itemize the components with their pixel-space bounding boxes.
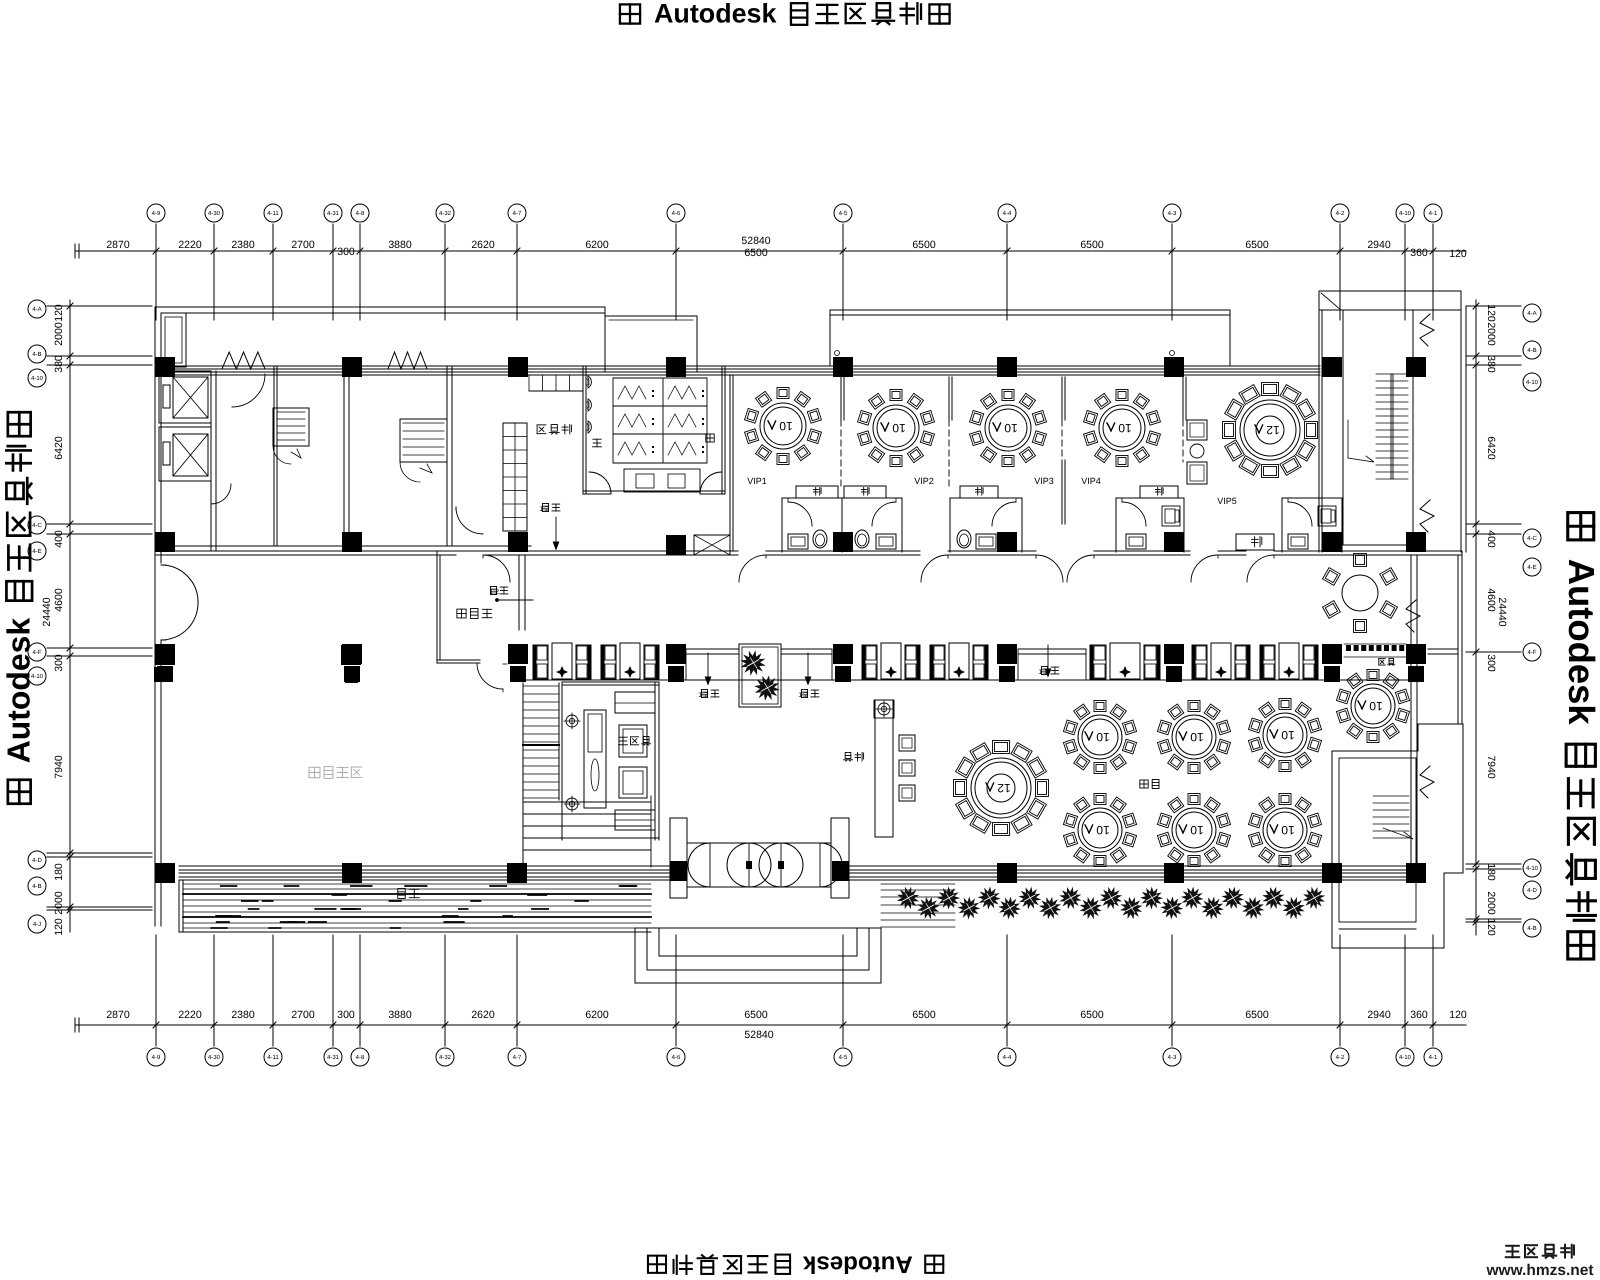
- svg-text:2940: 2940: [1367, 239, 1391, 251]
- svg-text:380: 380: [1485, 355, 1497, 373]
- svg-text:300: 300: [337, 1009, 355, 1021]
- svg-text:4-9: 4-9: [152, 1054, 161, 1061]
- svg-text:4600: 4600: [53, 588, 65, 612]
- svg-text:4-5: 4-5: [839, 1054, 848, 1061]
- svg-text:2000: 2000: [1485, 322, 1497, 346]
- svg-text:4-10: 4-10: [1399, 1054, 1412, 1061]
- svg-text:10: 10: [1096, 730, 1110, 744]
- svg-text:2220: 2220: [178, 239, 202, 251]
- svg-text:52840: 52840: [741, 235, 770, 247]
- svg-text:12: 12: [997, 781, 1011, 795]
- svg-text:4-D: 4-D: [1527, 887, 1537, 894]
- svg-text:10: 10: [1281, 728, 1295, 742]
- svg-text:10: 10: [1096, 823, 1110, 837]
- svg-text:4-4: 4-4: [1003, 1054, 1012, 1061]
- svg-text:4-11: 4-11: [267, 210, 279, 217]
- svg-text:10: 10: [892, 421, 906, 435]
- svg-text:6200: 6200: [585, 1009, 609, 1021]
- svg-text:360: 360: [1410, 247, 1428, 259]
- svg-text:2620: 2620: [471, 1009, 495, 1021]
- svg-text:4-C: 4-C: [1527, 535, 1537, 542]
- svg-text:4-6: 4-6: [672, 210, 681, 217]
- svg-text:1:2: 1:2: [798, 692, 808, 699]
- svg-text:7940: 7940: [53, 755, 65, 779]
- svg-text:4-10: 4-10: [1526, 379, 1539, 386]
- svg-text:4-8: 4-8: [356, 210, 365, 217]
- svg-text:4-7: 4-7: [513, 1054, 522, 1061]
- svg-text:1:2: 1:2: [698, 692, 708, 699]
- svg-text:2000: 2000: [53, 891, 65, 915]
- svg-text:4-B: 4-B: [1527, 347, 1536, 354]
- svg-text:4-5: 4-5: [839, 210, 848, 217]
- svg-text:4-31: 4-31: [327, 210, 340, 217]
- svg-text:4-10: 4-10: [1399, 210, 1412, 217]
- svg-text:300: 300: [53, 654, 65, 672]
- svg-text:6500: 6500: [912, 1009, 936, 1021]
- svg-text:Autodesk: Autodesk: [654, 0, 777, 29]
- svg-text:2870: 2870: [106, 239, 130, 251]
- svg-text:120: 120: [1485, 304, 1497, 322]
- svg-text:6500: 6500: [744, 247, 768, 259]
- svg-text:4-1: 4-1: [1429, 210, 1438, 217]
- svg-text:1:2: 1:2: [1038, 669, 1048, 676]
- svg-text:4-D: 4-D: [32, 857, 42, 864]
- svg-text:10: 10: [1118, 421, 1132, 435]
- svg-text:400: 400: [53, 530, 65, 548]
- svg-text:10: 10: [1369, 699, 1383, 713]
- svg-text:4-11: 4-11: [267, 1054, 279, 1061]
- svg-text:2700: 2700: [291, 1009, 315, 1021]
- svg-text:120: 120: [53, 304, 65, 322]
- svg-text:4-4: 4-4: [1003, 210, 1012, 217]
- svg-text:4-30: 4-30: [208, 210, 221, 217]
- svg-text:4-32: 4-32: [439, 1054, 452, 1061]
- svg-text:6420: 6420: [53, 436, 65, 460]
- svg-text:Autodesk: Autodesk: [1561, 559, 1600, 726]
- svg-text:VIP3: VIP3: [1034, 476, 1054, 486]
- svg-text:4-2: 4-2: [1336, 1054, 1345, 1061]
- svg-text:12: 12: [1266, 423, 1280, 437]
- svg-text:VIP2: VIP2: [914, 476, 934, 486]
- svg-text:4-F: 4-F: [1528, 649, 1537, 656]
- svg-text:4-31: 4-31: [327, 1054, 340, 1061]
- svg-text:2380: 2380: [231, 1009, 255, 1021]
- svg-text:52840: 52840: [744, 1029, 773, 1041]
- svg-text:Autodesk: Autodesk: [1, 618, 37, 764]
- svg-text:4-2: 4-2: [1336, 210, 1345, 217]
- svg-text:2620: 2620: [471, 239, 495, 251]
- svg-text:2380: 2380: [231, 239, 255, 251]
- svg-text:300: 300: [337, 246, 355, 258]
- svg-text:6500: 6500: [912, 239, 936, 251]
- svg-text:3880: 3880: [388, 239, 412, 251]
- svg-text:VIP5: VIP5: [1217, 496, 1237, 506]
- svg-text:120: 120: [1449, 248, 1467, 260]
- svg-text:120: 120: [53, 918, 65, 936]
- svg-text:1:2: 1:2: [539, 506, 549, 513]
- svg-text:4-3: 4-3: [1168, 210, 1177, 217]
- svg-text:4-10: 4-10: [31, 673, 44, 680]
- svg-text:4-C: 4-C: [32, 522, 42, 529]
- svg-text:VIP1: VIP1: [747, 476, 767, 486]
- svg-text:2000: 2000: [1485, 891, 1497, 915]
- svg-text:4-8: 4-8: [356, 1054, 365, 1061]
- svg-text:4-7: 4-7: [513, 210, 522, 217]
- svg-text:3880: 3880: [388, 1009, 412, 1021]
- svg-text:380: 380: [53, 355, 65, 373]
- svg-text:180: 180: [1485, 863, 1497, 881]
- svg-text:180: 180: [53, 863, 65, 881]
- svg-text:10: 10: [1190, 823, 1204, 837]
- svg-text:VIP4: VIP4: [1081, 476, 1101, 486]
- svg-text:4-E: 4-E: [32, 548, 41, 555]
- svg-text:4-A: 4-A: [32, 306, 41, 313]
- svg-text:4-B: 4-B: [1527, 925, 1536, 932]
- svg-text:2700: 2700: [291, 239, 315, 251]
- svg-text:6420: 6420: [1485, 436, 1497, 460]
- svg-text:4-B: 4-B: [32, 883, 41, 890]
- svg-text:2870: 2870: [106, 1009, 130, 1021]
- svg-text:24440: 24440: [41, 597, 53, 626]
- svg-text:2940: 2940: [1367, 1009, 1391, 1021]
- svg-text:6500: 6500: [1080, 239, 1104, 251]
- svg-text:10: 10: [1004, 421, 1018, 435]
- svg-text:400: 400: [1485, 530, 1497, 548]
- svg-text:4-10: 4-10: [1526, 865, 1539, 872]
- svg-text:4-B: 4-B: [32, 351, 41, 358]
- svg-text:6500: 6500: [744, 1009, 768, 1021]
- svg-text:4-3: 4-3: [1168, 1054, 1177, 1061]
- svg-text:4-9: 4-9: [152, 210, 161, 217]
- svg-text:Autodesk: Autodesk: [802, 1251, 912, 1278]
- svg-text:10: 10: [1190, 730, 1204, 744]
- svg-text:10: 10: [1281, 823, 1295, 837]
- svg-text:4-F: 4-F: [33, 649, 42, 656]
- svg-text:4600: 4600: [1485, 588, 1497, 612]
- svg-text:2000: 2000: [53, 322, 65, 346]
- svg-text:7940: 7940: [1485, 755, 1497, 779]
- svg-text:4-10: 4-10: [31, 375, 44, 382]
- svg-text:4-1: 4-1: [1429, 1054, 1438, 1061]
- svg-text:4-J: 4-J: [33, 921, 41, 928]
- svg-text:2220: 2220: [178, 1009, 202, 1021]
- svg-text:4-6: 4-6: [672, 1054, 681, 1061]
- svg-text:6200: 6200: [585, 239, 609, 251]
- svg-text:www.hmzs.net: www.hmzs.net: [1485, 1262, 1593, 1279]
- svg-text:360: 360: [1410, 1009, 1428, 1021]
- svg-text:6500: 6500: [1245, 1009, 1269, 1021]
- svg-text:24440: 24440: [1496, 597, 1508, 626]
- svg-text:6500: 6500: [1080, 1009, 1104, 1021]
- svg-text:4-32: 4-32: [439, 210, 452, 217]
- svg-text:4-30: 4-30: [208, 1054, 221, 1061]
- svg-text:10: 10: [779, 419, 793, 433]
- svg-text:4-E: 4-E: [1527, 564, 1536, 571]
- svg-text:300: 300: [1485, 654, 1497, 672]
- svg-text:4-A: 4-A: [1527, 310, 1536, 317]
- svg-text:1:2: 1:2: [489, 589, 499, 596]
- svg-text:6500: 6500: [1245, 239, 1269, 251]
- svg-text:120: 120: [1449, 1009, 1467, 1021]
- svg-text:120: 120: [1485, 918, 1497, 936]
